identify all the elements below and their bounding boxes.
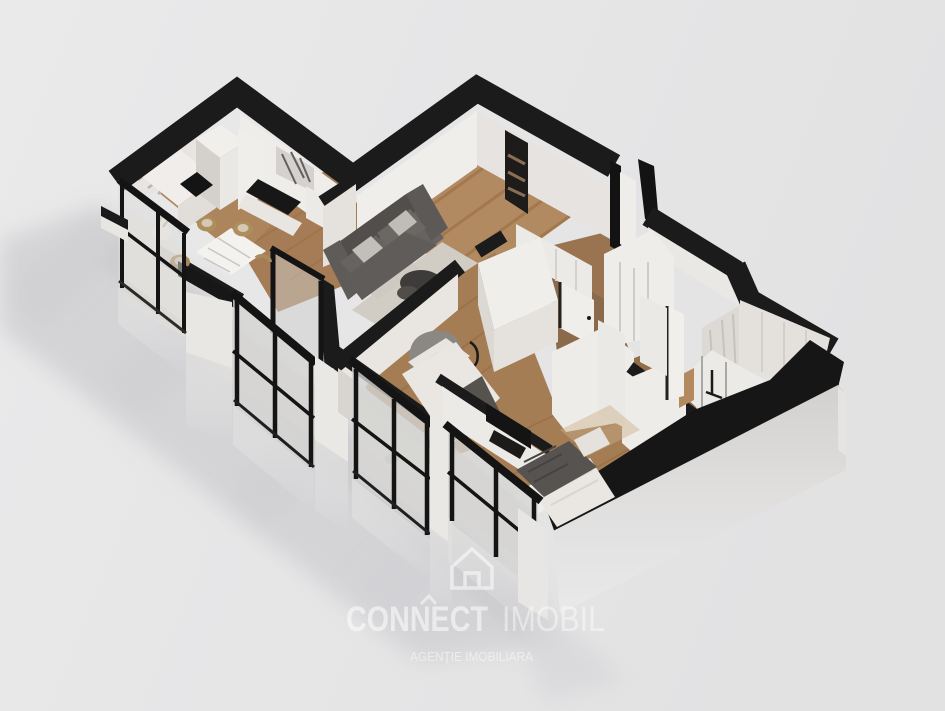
svg-text:IMOBIL: IMOBIL: [502, 600, 605, 639]
svg-text:CONNECT: CONNECT: [346, 600, 488, 639]
svg-text:AGENŢIE IMOBILIARA: AGENŢIE IMOBILIARA: [410, 650, 534, 664]
